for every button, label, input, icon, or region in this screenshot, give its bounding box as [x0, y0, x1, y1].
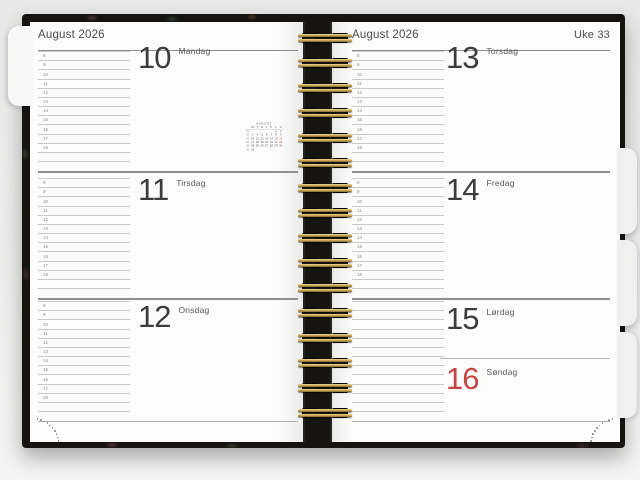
- day-14-heading: 14Fredag: [446, 174, 515, 205]
- hour-label: 8: [357, 54, 360, 59]
- hour-rule-line: [352, 356, 444, 357]
- hour-rule-line: [38, 88, 130, 89]
- hour-label: 16: [43, 378, 48, 383]
- mini-calendar-grid: MTOTFLS311232345678933101112131415163417…: [245, 125, 287, 151]
- hour-label: 14: [357, 109, 362, 114]
- hour-label: 11: [43, 332, 48, 337]
- weekday-label: Torsdag: [486, 46, 518, 56]
- binding-wire: [298, 289, 352, 292]
- hour-rule-line: [38, 152, 130, 153]
- binding-wire: [298, 34, 352, 37]
- binding-wire: [298, 134, 352, 137]
- hour-rule-line: [38, 393, 130, 394]
- hour-rule-line: [352, 224, 444, 225]
- hour-label: 15: [43, 245, 48, 250]
- hour-rule-line: [38, 79, 130, 80]
- right-page-tab: [617, 332, 637, 418]
- perforation-dot: [592, 433, 594, 435]
- hour-rule-line: [38, 224, 130, 225]
- hour-rule-line: [38, 251, 130, 252]
- hour-rule-line: [352, 206, 444, 207]
- hour-rule-line: [38, 338, 130, 339]
- hour-rule-line: [38, 411, 130, 412]
- hour-rule-line: [352, 310, 444, 311]
- hour-rule-line: [352, 134, 444, 135]
- hour-label: 10: [357, 73, 362, 78]
- hour-label: 12: [357, 91, 362, 96]
- hour-rule-line: [38, 60, 130, 61]
- perforation-dot: [590, 440, 592, 442]
- weekday-label: Søndag: [486, 367, 517, 377]
- hour-rule-line: [38, 374, 130, 375]
- hour-label: 11: [43, 82, 48, 87]
- binding-wire: [298, 184, 352, 187]
- binding-wire: [298, 284, 352, 287]
- perforation-dot: [47, 422, 49, 424]
- hour-label: 15: [43, 368, 48, 373]
- hour-label: 17: [43, 264, 48, 269]
- binding-wire: [298, 164, 352, 167]
- hour-label: 10: [43, 200, 48, 205]
- hour-rule-line: [38, 384, 130, 385]
- binding-wire: [298, 189, 352, 192]
- perforation-dot: [40, 419, 42, 421]
- weekday-label: Lørdag: [486, 307, 514, 317]
- hour-rule-line: [352, 196, 444, 197]
- hour-rule-line: [38, 69, 130, 70]
- hour-rule-line: [352, 124, 444, 125]
- hour-rule-line: [352, 270, 444, 271]
- hour-rule-line: [352, 365, 444, 366]
- hour-label: 8: [357, 181, 360, 186]
- hour-label: 13: [357, 100, 362, 105]
- hour-rule-line: [352, 161, 444, 162]
- hour-label: 14: [43, 236, 48, 241]
- binding-wire: [298, 414, 352, 417]
- binding-wire: [298, 389, 352, 392]
- hour-label: 12: [357, 218, 362, 223]
- hour-rule-line: [352, 69, 444, 70]
- perforation-dot: [37, 418, 39, 420]
- hour-label: 13: [357, 227, 362, 232]
- hour-rule-line: [38, 329, 130, 330]
- left-page: August 2026 AUGUSTMTOTFLS311232345678933…: [30, 22, 305, 442]
- hour-rule-line: [38, 242, 130, 243]
- hour-rule-line: [352, 178, 444, 179]
- hour-rule-line: [38, 288, 130, 289]
- binding-wire: [298, 209, 352, 212]
- hour-rule-line: [38, 365, 130, 366]
- perforation-dot: [594, 430, 596, 432]
- perforation-dot: [54, 430, 56, 432]
- hour-rule-line: [38, 178, 130, 179]
- day-16-heading: 16Søndag: [446, 363, 517, 394]
- hour-rule-line: [38, 356, 130, 357]
- hour-rule-line: [38, 270, 130, 271]
- hour-rule-line: [38, 51, 130, 52]
- hour-label: 15: [357, 118, 362, 123]
- mini-month-calendar: AUGUSTMTOTFLS311232345678933101112131415…: [245, 122, 287, 151]
- hour-label: 14: [43, 109, 48, 114]
- binding-wire: [298, 409, 352, 412]
- hour-label: 18: [43, 396, 48, 401]
- hour-rule-line: [38, 347, 130, 348]
- perforation-dot: [608, 419, 610, 421]
- hour-label: 12: [43, 341, 48, 346]
- day-number: 10: [138, 40, 170, 75]
- hour-label: 18: [43, 273, 48, 278]
- binding-wire: [298, 59, 352, 62]
- binding-wire: [298, 64, 352, 67]
- hour-rule-line: [352, 347, 444, 348]
- perforation-dot: [596, 427, 598, 429]
- binding-wire: [298, 264, 352, 267]
- mini-day: [278, 148, 283, 152]
- hour-label: 9: [357, 63, 360, 68]
- hour-label: 10: [357, 200, 362, 205]
- binding-wire: [298, 314, 352, 317]
- binding-wire: [298, 114, 352, 117]
- hour-label: 14: [43, 359, 48, 364]
- hour-rule-line: [352, 233, 444, 234]
- hour-label: 14: [357, 236, 362, 241]
- hour-label: 15: [43, 118, 48, 123]
- hour-rule-line: [352, 301, 444, 302]
- hour-label: 15: [357, 245, 362, 250]
- binding-wire: [298, 259, 352, 262]
- hour-label: 13: [43, 100, 48, 105]
- perforation-dot: [43, 421, 45, 423]
- binding-wire: [298, 234, 352, 237]
- planner-week-spread: August 2026 AUGUSTMTOTFLS311232345678933…: [0, 0, 640, 480]
- hour-rule-line: [38, 161, 130, 162]
- right-month-title: August 2026: [352, 29, 419, 41]
- hour-label: 9: [43, 313, 46, 318]
- hour-label: 8: [43, 54, 46, 59]
- day-number: 12: [138, 299, 170, 334]
- week-number-label: Uke 33: [574, 29, 610, 41]
- hour-label: 18: [43, 146, 48, 151]
- day-15-heading: 15Lørdag: [446, 303, 515, 334]
- hour-label: 10: [43, 323, 48, 328]
- day-number: 14: [446, 172, 478, 207]
- weekday-label: Fredag: [486, 178, 514, 188]
- hour-rule-line: [38, 115, 130, 116]
- hour-rule-line: [352, 106, 444, 107]
- binding-wire: [298, 359, 352, 362]
- hour-rule-line: [352, 79, 444, 80]
- hour-label: 17: [357, 137, 362, 142]
- left-page-tab: [8, 26, 32, 106]
- day-number: 16: [446, 361, 478, 396]
- hour-rule-line: [352, 279, 444, 280]
- hour-rule-line: [38, 187, 130, 188]
- binding-wire: [298, 214, 352, 217]
- hour-rule-line: [352, 251, 444, 252]
- hour-rule-line: [352, 338, 444, 339]
- hour-rule-line: [352, 115, 444, 116]
- hour-rule-line: [352, 51, 444, 52]
- hour-rule-line: [38, 134, 130, 135]
- hour-rule-line: [352, 215, 444, 216]
- binding-wire: [298, 39, 352, 42]
- binding-wire: [298, 309, 352, 312]
- hour-label: 10: [43, 73, 48, 78]
- hour-label: 16: [43, 255, 48, 260]
- hour-rule-line: [352, 374, 444, 375]
- hour-rule-line: [38, 196, 130, 197]
- hour-label: 18: [357, 273, 362, 278]
- hour-rule-line: [38, 402, 130, 403]
- hour-label: 11: [357, 209, 362, 214]
- hour-label: 9: [43, 63, 46, 68]
- binding-wire: [298, 384, 352, 387]
- hour-rule-line: [352, 288, 444, 289]
- hour-rule-line: [352, 411, 444, 412]
- perforation-dot: [612, 418, 614, 420]
- hour-rule-line: [352, 143, 444, 144]
- left-month-title: August 2026: [38, 29, 105, 41]
- binding-wire: [298, 139, 352, 142]
- hour-label: 13: [43, 350, 48, 355]
- hour-label: 17: [43, 137, 48, 142]
- binding-wire: [298, 334, 352, 337]
- hour-label: 9: [43, 190, 46, 195]
- hour-label: 11: [357, 82, 362, 87]
- binding-wire: [298, 109, 352, 112]
- binding-wire: [298, 84, 352, 87]
- hour-rule-line: [352, 88, 444, 89]
- hour-rule-line: [38, 106, 130, 107]
- hour-rule-line: [38, 233, 130, 234]
- hour-rule-line: [352, 402, 444, 403]
- day-12-heading: 12Onsdag: [138, 301, 209, 332]
- hour-label: 12: [43, 91, 48, 96]
- hour-label: 11: [43, 209, 48, 214]
- day-number: 13: [446, 40, 478, 75]
- day-10-heading: 10Mandag: [138, 42, 210, 73]
- hour-label: 18: [357, 146, 362, 151]
- right-page-tab: [617, 148, 637, 234]
- hour-rule-line: [38, 319, 130, 320]
- hour-label: 16: [357, 255, 362, 260]
- hour-rule-line: [38, 310, 130, 311]
- binding-wire: [298, 159, 352, 162]
- hour-rule-line: [352, 60, 444, 61]
- hour-rule-line: [352, 384, 444, 385]
- hour-rule-line: [352, 187, 444, 188]
- hour-label: 17: [357, 264, 362, 269]
- hour-rule-line: [38, 261, 130, 262]
- page-bottom-rule: [38, 421, 298, 422]
- weekday-label: Onsdag: [178, 305, 209, 315]
- hour-label: 17: [43, 387, 48, 392]
- hour-rule-line: [352, 393, 444, 394]
- hour-rule-line: [38, 206, 130, 207]
- hour-rule-line: [352, 97, 444, 98]
- binding-wire: [298, 339, 352, 342]
- hour-rule-line: [352, 242, 444, 243]
- hour-rule-line: [38, 97, 130, 98]
- day-11-heading: 11Tirsdag: [138, 174, 206, 205]
- right-page: August 2026 Uke 33 891011121314151617188…: [330, 22, 620, 442]
- hour-label: 8: [43, 304, 46, 309]
- hour-label: 9: [357, 190, 360, 195]
- binding-wire: [298, 239, 352, 242]
- day-13-heading: 13Torsdag: [446, 42, 518, 73]
- page-bottom-rule: [352, 421, 610, 422]
- day-section-divider: [352, 171, 610, 173]
- saturday-sunday-divider: [440, 358, 610, 359]
- hour-label: 16: [357, 128, 362, 133]
- hour-label: 12: [43, 218, 48, 223]
- binding-wire: [298, 89, 352, 92]
- binding-wire: [298, 364, 352, 367]
- weekday-label: Tirsdag: [176, 178, 205, 188]
- hour-rule-line: [38, 124, 130, 125]
- perforation-dot: [602, 422, 604, 424]
- hour-label: 16: [43, 128, 48, 133]
- hour-rule-line: [38, 215, 130, 216]
- hour-rule-line: [38, 143, 130, 144]
- hour-label: 8: [43, 181, 46, 186]
- hour-rule-line: [352, 329, 444, 330]
- hour-rule-line: [352, 261, 444, 262]
- hour-rule-line: [352, 152, 444, 153]
- day-number: 11: [138, 172, 168, 207]
- hour-label: 13: [43, 227, 48, 232]
- day-number: 15: [446, 301, 478, 336]
- day-section-divider: [352, 298, 610, 300]
- hour-rule-line: [352, 319, 444, 320]
- right-page-tab: [617, 240, 637, 326]
- hour-rule-line: [38, 279, 130, 280]
- hour-rule-line: [38, 301, 130, 302]
- weekday-label: Mandag: [178, 46, 210, 56]
